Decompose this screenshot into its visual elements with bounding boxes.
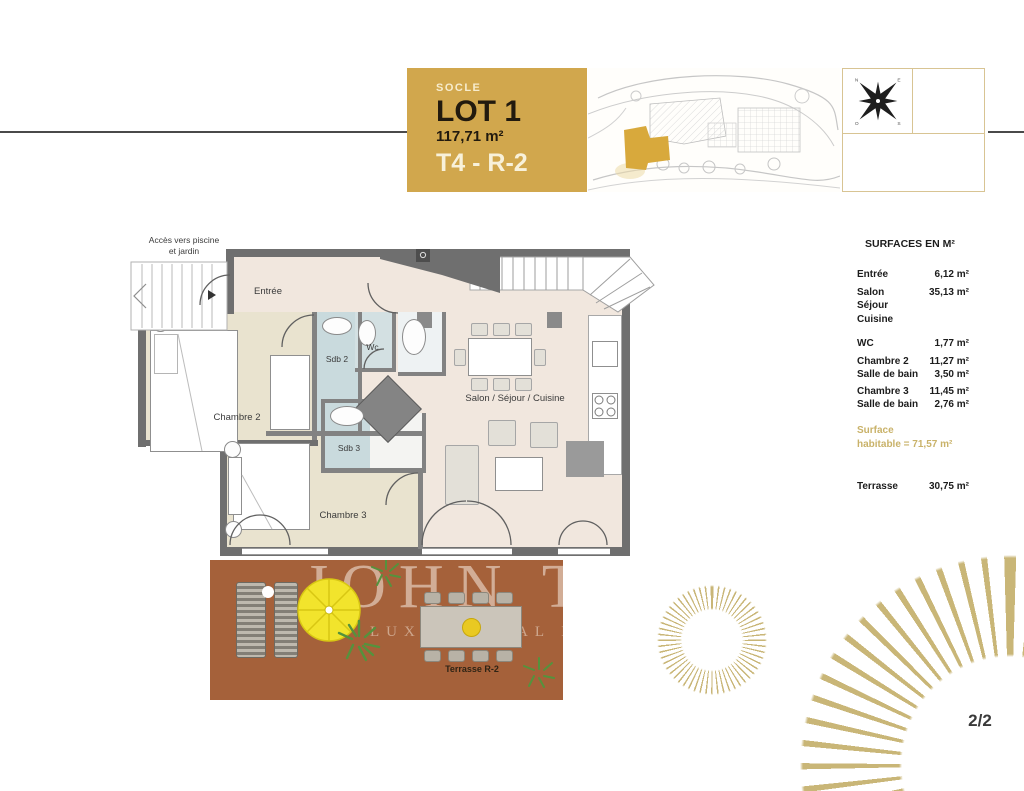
- compass-label-e: E: [897, 78, 901, 84]
- surface-row-label: WC: [857, 337, 874, 351]
- entree-angled-wall: [380, 250, 500, 293]
- outdoor-chair: [496, 592, 513, 604]
- plant-icon: [522, 656, 556, 690]
- compass-rose-icon: N E S O: [849, 72, 907, 130]
- compass-label-n: N: [854, 78, 858, 84]
- lot-number: LOT 1: [436, 96, 587, 128]
- sunburst-decoration-large: [795, 550, 1024, 791]
- surface-row: Salle de bain 3,50 m²: [857, 368, 969, 382]
- outdoor-chair: [496, 650, 513, 662]
- surface-row-terrasse: Terrasse 30,75 m²: [857, 480, 969, 494]
- surface-row-label: Chambre 2: [857, 355, 909, 369]
- label-chambre-3: Chambre 3: [308, 510, 378, 521]
- surface-habitable-line2: habitable = 71,57 m²: [857, 438, 969, 452]
- surfaces-title: SURFACES EN M²: [857, 238, 969, 250]
- legend-cell-empty: [913, 69, 984, 133]
- outdoor-chair: [424, 592, 441, 604]
- surface-row: Séjour: [857, 299, 969, 313]
- lot-type-floor: T4 - R-2: [436, 148, 587, 178]
- label-terrasse: Terrasse R-2: [431, 664, 513, 674]
- collection-name: SOCLE: [436, 82, 587, 94]
- sun-lounger: [274, 582, 298, 658]
- lot-header: SOCLE LOT 1 117,71 m² T4 - R-2: [407, 68, 587, 192]
- stove-burners: [595, 396, 615, 416]
- header-rule-left: [0, 131, 408, 133]
- lot-total-area: 117,71 m²: [436, 128, 587, 145]
- surface-row: WC 1,77 m²: [857, 337, 969, 351]
- label-salon: Salon / Séjour / Cuisine: [445, 393, 585, 404]
- plan-linework: [130, 235, 670, 570]
- surface-row-value: 30,75 m²: [929, 480, 969, 494]
- header-rule-right: [988, 131, 1024, 133]
- surface-row-label: Chambre 3: [857, 385, 909, 399]
- surface-row-label: Terrasse: [857, 480, 898, 494]
- label-chambre-2: Chambre 2: [202, 412, 272, 423]
- surface-row-value: 11,27 m²: [930, 355, 969, 369]
- surfaces-panel: SURFACES EN M² Entrée 6,12 m² Salon 35,1…: [857, 238, 969, 493]
- surface-row-label: Cuisine: [857, 313, 893, 327]
- surface-row: Salle de bain 2,76 m²: [857, 398, 969, 412]
- floor-plan: Accès vers piscine et jardin Entrée Cham…: [130, 235, 670, 570]
- outdoor-chair: [424, 650, 441, 662]
- compass-cell: N E S O: [843, 69, 913, 133]
- outdoor-chair: [448, 592, 465, 604]
- outdoor-chair: [448, 650, 465, 662]
- stairs-winder: [583, 257, 654, 312]
- surface-row-label: Séjour: [857, 299, 888, 313]
- outdoor-chair: [472, 592, 489, 604]
- plant-icon: [370, 560, 402, 589]
- side-table: [262, 586, 274, 598]
- surface-row-value: 35,13 m²: [929, 286, 969, 300]
- surface-row: Entrée 6,12 m²: [857, 268, 969, 282]
- legend-row-bottom: [843, 134, 984, 192]
- brochure-page: SOCLE LOT 1 117,71 m² T4 - R-2: [0, 0, 1024, 791]
- access-note-line1: Accès vers piscine: [149, 235, 219, 245]
- plant-icon: [336, 618, 382, 664]
- compass-label-s: S: [897, 121, 900, 127]
- surface-row-value: 6,12 m²: [935, 268, 969, 282]
- label-sdb-3: Sdb 3: [329, 443, 369, 453]
- sunburst-decoration-small: [656, 584, 768, 696]
- surface-row: Chambre 3 11,45 m²: [857, 385, 969, 399]
- compass-label-o: O: [854, 121, 858, 127]
- page-number: 2/2: [950, 711, 1010, 731]
- label-entree: Entrée: [238, 286, 298, 297]
- surface-row-label: Salle de bain: [857, 368, 918, 382]
- surface-row: Cuisine: [857, 313, 969, 327]
- site-plan-thumbnail: [588, 68, 840, 192]
- surface-row-value: 1,77 m²: [935, 337, 969, 351]
- surface-row: Salon 35,13 m²: [857, 286, 969, 300]
- surface-row-label: Entrée: [857, 268, 888, 282]
- surface-row-value: 2,76 m²: [935, 398, 969, 412]
- label-wc: Wc: [360, 342, 385, 352]
- terrace: JOHN TA LUXURY REAL ESTATE S: [210, 560, 563, 700]
- table-centerpiece: [462, 618, 481, 637]
- surface-row: Chambre 2 11,27 m²: [857, 355, 969, 369]
- surface-habitable-line1: Surface: [857, 424, 969, 438]
- outdoor-chair: [472, 650, 489, 662]
- surface-habitable: Surface habitable = 71,57 m²: [857, 424, 969, 452]
- surface-row-value: 3,50 m²: [935, 368, 969, 382]
- legend-row-top: N E S O: [843, 69, 984, 134]
- access-note-line2: et jardin: [169, 246, 199, 256]
- surface-row-label: Salle de bain: [857, 398, 918, 412]
- legend-table: N E S O: [842, 68, 985, 192]
- access-note: Accès vers piscine et jardin: [130, 235, 238, 257]
- site-plan-sketch: [588, 68, 840, 192]
- surface-row-value: 11,45 m²: [930, 385, 969, 399]
- door-arcs: [200, 275, 607, 545]
- label-sdb-2: Sdb 2: [317, 354, 357, 364]
- surface-row-label: Salon: [857, 286, 884, 300]
